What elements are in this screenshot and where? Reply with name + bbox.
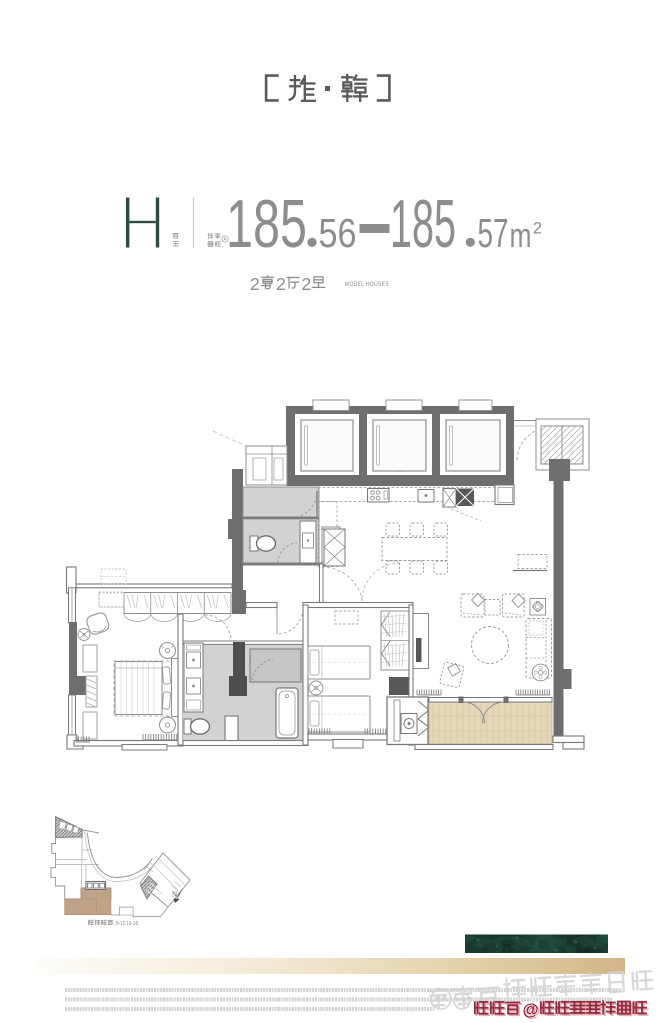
svg-text:8-12,15-18: 8-12,15-18 [116,921,138,927]
svg-text:185: 185 [390,186,456,262]
svg-text:2: 2 [533,219,542,238]
svg-text:2: 2 [276,274,286,294]
svg-text:N: N [172,891,177,899]
svg-text:2: 2 [302,274,312,294]
svg-text:185: 185 [226,186,307,262]
svg-text:MODEL HOUSES: MODEL HOUSES [345,281,389,288]
svg-text:57: 57 [478,210,509,256]
svg-text:2: 2 [250,274,260,294]
svg-text:@: @ [523,1001,539,1019]
svg-text:m: m [510,217,532,255]
svg-text:56: 56 [319,210,357,256]
